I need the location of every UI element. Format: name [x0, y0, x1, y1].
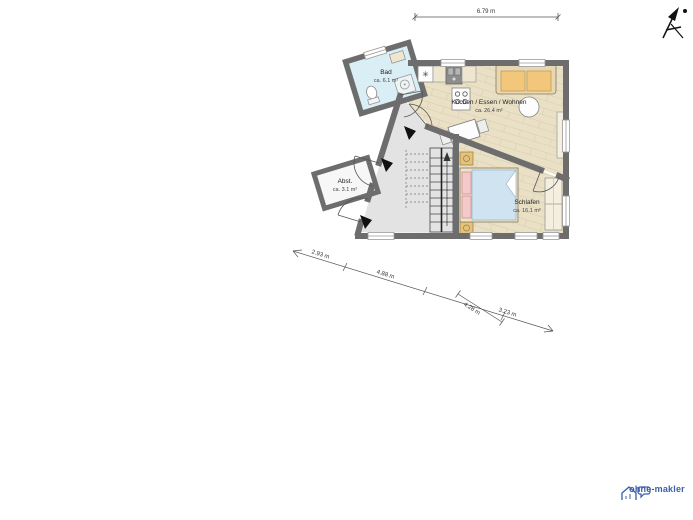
floorplan-canvas: ✳ — [0, 0, 693, 520]
diagonal-dim-label-2: 4.88 m — [376, 269, 395, 280]
window — [519, 60, 545, 67]
diagonal-dimension-long — [293, 251, 553, 331]
kitchen-counter-2 — [462, 66, 476, 82]
living-room-label: Kochen / Essen / Wohnen — [451, 99, 526, 106]
ohne-makler-logo: ohne-makler — [618, 484, 693, 494]
sofa-cushion — [501, 71, 525, 91]
storage-area: ca. 3.1 m² — [333, 187, 358, 193]
window — [368, 233, 394, 240]
north-arrow-icon — [663, 7, 687, 38]
bathroom-area: ca. 6.1 m² — [374, 78, 399, 84]
nightstand — [460, 152, 473, 165]
bathroom-label: Bad — [380, 69, 392, 76]
window — [441, 60, 465, 67]
bed-blanket — [472, 170, 516, 220]
storage-label: Abst. — [338, 178, 353, 185]
dimension-line-top: 6.79 m — [413, 9, 561, 21]
living-room-area: ca. 26.4 m² — [475, 108, 503, 114]
bedroom-label: Schlafen — [514, 199, 540, 206]
sofa-cushion — [527, 71, 551, 91]
dimension-lines-diagonal: 2.93 m 4.88 m 4.28 m 3.23 m — [293, 249, 553, 332]
floorplan-page: ✳ — [0, 0, 693, 520]
kitchen-counter — [433, 66, 446, 82]
window — [563, 196, 570, 226]
window — [515, 233, 537, 240]
window — [470, 233, 492, 240]
bedroom-area: ca. 16.1 m² — [513, 208, 541, 214]
pillow — [462, 172, 471, 194]
dimension-top-label: 6.79 m — [477, 9, 495, 15]
diagonal-dim-label-1: 2.93 m — [311, 249, 330, 260]
wall-divider-stub — [559, 176, 566, 179]
pillow — [462, 196, 471, 218]
logo-house-bubble-icon — [618, 484, 654, 501]
floor-plan: ✳ — [314, 39, 570, 239]
diagonal-dim-label-3: 4.28 m — [462, 302, 481, 317]
window — [543, 233, 559, 240]
window — [563, 120, 570, 152]
freezer-icon: ✳ — [422, 70, 429, 79]
